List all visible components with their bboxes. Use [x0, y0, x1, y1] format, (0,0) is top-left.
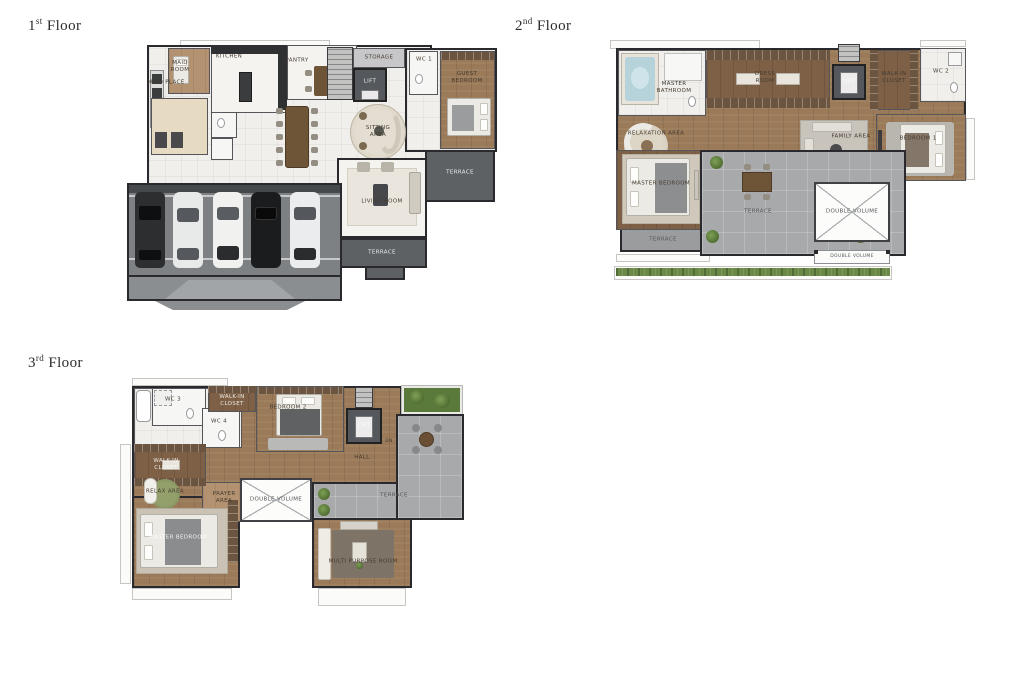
blanket: [655, 163, 687, 213]
windshield: [139, 206, 161, 220]
room-label: LIFT: [364, 79, 377, 86]
room-label: DOUBLE VOLUME: [250, 497, 302, 504]
toilet-icon: [950, 82, 958, 93]
room-label: MASTER BEDROOM: [632, 181, 690, 188]
room-label: WC 3: [165, 397, 181, 404]
room-label: WC 2: [933, 69, 949, 76]
room-label: MASTER BEDROOM: [149, 535, 207, 542]
room-label: BEDROOM 1: [899, 136, 936, 143]
blanket: [280, 409, 320, 435]
car-sports-icon: [173, 192, 203, 268]
staircase: [327, 47, 353, 100]
floor1-title-ordinal: st: [36, 16, 43, 26]
room-label: MASTER BATHROOM: [656, 81, 692, 95]
balcony-band-right: [966, 118, 975, 180]
rear-glass: [139, 250, 161, 260]
hedge-strip: [616, 268, 890, 276]
balcony-bottom: [318, 588, 406, 606]
floor1-title-number: 1: [28, 18, 36, 34]
pillow: [935, 153, 943, 167]
room-label: FAMILY AREA: [832, 134, 871, 141]
patio-chair: [434, 446, 442, 454]
chair: [311, 147, 318, 153]
rear-glass: [177, 248, 199, 260]
cabinet: [155, 132, 167, 148]
room-label: TERRACE: [744, 209, 772, 216]
windshield: [177, 208, 199, 222]
chair: [311, 160, 318, 166]
room-label: TERRACE: [380, 493, 408, 500]
blanket: [165, 519, 201, 565]
balcony-band-left: [120, 444, 131, 584]
room-label: WALK-IN CLOSET: [215, 394, 249, 408]
chair: [763, 164, 770, 170]
car-sedan-black-icon: [251, 192, 281, 268]
floor3-title-number: 3: [28, 355, 36, 371]
patio-chair: [412, 446, 420, 454]
pillow: [480, 119, 488, 131]
patio-table: [419, 432, 434, 447]
pillow: [144, 545, 153, 560]
room-label: DN: [385, 439, 393, 445]
guest-wardrobe: [441, 52, 494, 60]
room-label: PANTRY: [285, 58, 308, 65]
chair: [744, 164, 751, 170]
armchair: [381, 162, 394, 172]
bed: [276, 394, 322, 436]
windshield: [217, 207, 239, 220]
floorplan-first-floor: MAID ROOM KITCHEN PANTRY MAID PLACE STOR…: [125, 40, 497, 312]
room-label: LIFT: [843, 79, 856, 86]
dining-chairs-right: [311, 108, 318, 166]
outdoor-chairs: [744, 194, 770, 200]
wardrobe-col: [228, 500, 238, 562]
room-label: LIFT: [358, 423, 371, 430]
wardrobe-row: [706, 98, 830, 108]
floor1-title-word: Floor: [47, 18, 82, 34]
chair: [276, 147, 283, 153]
rear-glass: [294, 248, 316, 260]
floor3-title: 3rd Floor: [28, 353, 83, 372]
plant-icon: [410, 390, 424, 404]
floor2-title: 2nd Floor: [515, 16, 571, 35]
room-label: TERRACE: [446, 170, 474, 177]
floorplan-third-floor: WC 3 WC 4 WALK-IN CLOSET BEDROOM 2 LIFT …: [118, 378, 474, 640]
room-label: MAID PLACE: [147, 80, 184, 87]
chair: [744, 194, 751, 200]
armchair: [357, 162, 370, 172]
room-label: DOUBLE VOLUME: [826, 209, 878, 216]
terrace-right: [396, 414, 464, 520]
driveway-apron: [155, 301, 305, 310]
column: [814, 250, 818, 254]
outdoor-chairs: [744, 164, 770, 170]
chair: [311, 134, 318, 140]
stool: [359, 142, 367, 150]
plant-icon: [434, 394, 450, 408]
room-label: GUEST BEDROOM: [447, 71, 487, 85]
bench: [694, 170, 699, 200]
room-label: KITCHEN: [216, 54, 242, 61]
room-label: WALK-IN CLOSET: [877, 71, 911, 85]
chair: [276, 121, 283, 127]
toilet-icon: [186, 408, 194, 419]
patio-chair: [412, 424, 420, 432]
toilet-icon: [415, 74, 423, 84]
room-label: PRAYER AREA: [211, 491, 237, 505]
room-label: RELAX AREA: [146, 489, 184, 496]
dresser-island: [776, 73, 800, 85]
shower: [948, 52, 962, 66]
pantry-chairs: [305, 70, 312, 92]
room-label: TERRACE: [368, 250, 396, 257]
kitchen-island: [239, 72, 252, 102]
outdoor-table: [742, 172, 772, 192]
cabinet: [171, 132, 183, 148]
car-suv-icon: [135, 192, 165, 268]
pillow: [630, 191, 639, 207]
room-label: MAID ROOM: [166, 60, 194, 74]
room-label: RELAXATION AREA: [628, 131, 685, 138]
room-label: STORAGE: [365, 55, 394, 62]
floor3-title-ordinal: rd: [36, 353, 44, 363]
guest-bed: [447, 98, 491, 136]
chair: [305, 86, 312, 92]
toilet-icon: [688, 96, 696, 107]
sofa: [812, 122, 852, 132]
room-label: WALK-IN CLOSET: [149, 458, 183, 472]
toilet-icon: [217, 118, 225, 128]
credenza: [340, 521, 378, 530]
floor3-title-word: Floor: [48, 355, 83, 371]
stool: [359, 112, 367, 120]
room-label: LIVING ROOM: [361, 199, 402, 206]
wardrobe-row: [134, 444, 206, 452]
car-sedan-white-icon: [213, 192, 243, 268]
room-label: TERRACE: [649, 237, 677, 244]
patio-chair: [434, 424, 442, 432]
staircase: [838, 44, 860, 62]
floor2-title-ordinal: nd: [523, 16, 533, 26]
chair: [276, 160, 283, 166]
plant-icon: [706, 230, 719, 243]
chair: [311, 108, 318, 114]
wardrobe-row: [258, 387, 342, 394]
balcony-rail: [132, 588, 232, 600]
chair: [276, 134, 283, 140]
floor2-title-word: Floor: [537, 18, 572, 34]
room-label: WC 4: [211, 419, 227, 426]
dining-table: [285, 106, 309, 168]
room-label: MULTI PURPOSE ROOM: [329, 559, 398, 566]
rear-glass: [217, 246, 239, 260]
wardrobe-row: [706, 50, 830, 60]
room-label: HALL: [354, 455, 369, 462]
room-label: WC 1: [416, 57, 432, 64]
wardrobe-row: [208, 386, 256, 393]
balcony-rail: [616, 254, 710, 262]
sofa: [409, 172, 421, 214]
car-white-icon: [290, 192, 320, 268]
room-label: DRESS ROOM: [751, 71, 779, 85]
bathtub-icon: [136, 390, 151, 422]
sofa: [318, 528, 331, 580]
dryer-icon: [152, 88, 162, 98]
toilet-icon: [218, 430, 226, 441]
room-wc4: [202, 408, 240, 448]
chair: [276, 108, 283, 114]
floor-plans-sheet: 1st Floor 2nd Floor 3rd Floor: [0, 0, 1024, 688]
shrub-icon: [318, 488, 330, 500]
staircase: [355, 387, 373, 408]
windshield: [294, 207, 316, 220]
jacuzzi-icon: [625, 57, 655, 101]
chair: [305, 70, 312, 76]
bed: [900, 124, 946, 174]
chair: [763, 194, 770, 200]
terrace-step: [365, 268, 405, 280]
plant-icon: [710, 156, 723, 169]
pillow: [480, 103, 488, 115]
lift-car: [361, 90, 379, 100]
column: [886, 250, 890, 254]
floorplan-second-floor: MASTER BATHROOM DRESS ROOM LIFT WALK-IN …: [608, 38, 970, 290]
balcony-band-topright: [920, 40, 966, 47]
dining-chairs-left: [276, 108, 283, 166]
wardrobe-col: [910, 50, 918, 110]
bedroom-rug: [268, 438, 328, 450]
floor1-title: 1st Floor: [28, 16, 81, 35]
windshield: [255, 207, 277, 220]
room-wc-small: [211, 138, 233, 160]
jacuzzi-water: [631, 67, 649, 89]
room-label: DOUBLE VOLUME: [830, 254, 874, 260]
shrub-icon: [318, 504, 330, 516]
room-label: SITTING AREA: [361, 125, 395, 139]
blanket: [452, 105, 474, 131]
room-label: BEDROOM 2: [269, 405, 306, 412]
floor2-title-number: 2: [515, 18, 523, 34]
shower: [664, 53, 702, 81]
balcony-band-top: [132, 378, 228, 386]
chair: [311, 121, 318, 127]
